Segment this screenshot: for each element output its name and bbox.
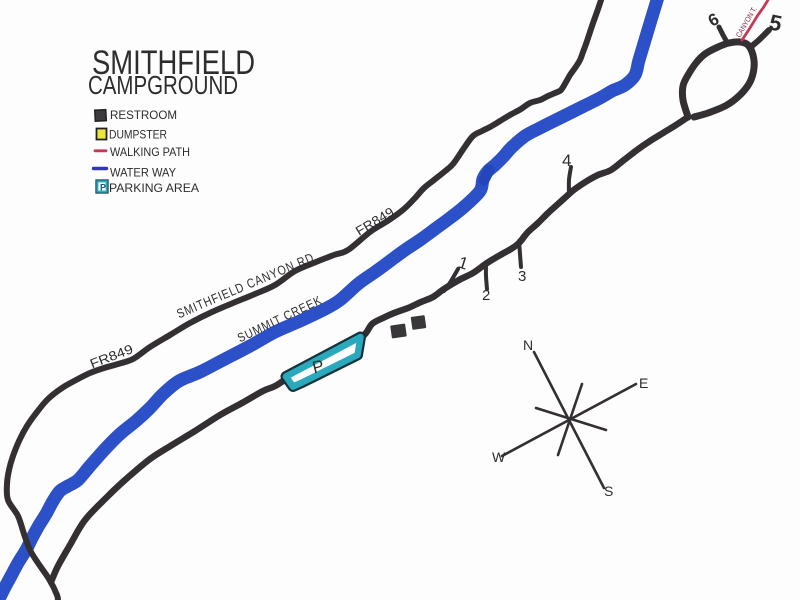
- svg-text:S: S: [604, 483, 613, 499]
- svg-text:PARKING AREA: PARKING AREA: [109, 181, 199, 195]
- svg-text:N: N: [523, 337, 533, 353]
- svg-text:WALKING PATH: WALKING PATH: [110, 145, 190, 159]
- svg-text:WATER WAY: WATER WAY: [110, 166, 176, 180]
- svg-text:E: E: [639, 375, 648, 391]
- svg-text:3: 3: [518, 268, 526, 285]
- svg-text:RESTROOM: RESTROOM: [110, 108, 177, 122]
- svg-text:W: W: [492, 449, 506, 465]
- svg-text:4: 4: [562, 151, 571, 170]
- svg-text:CAMPGROUND: CAMPGROUND: [88, 70, 238, 100]
- svg-text:DUMPSTER: DUMPSTER: [109, 128, 167, 142]
- svg-text:P: P: [100, 183, 106, 193]
- svg-text:2: 2: [482, 287, 490, 304]
